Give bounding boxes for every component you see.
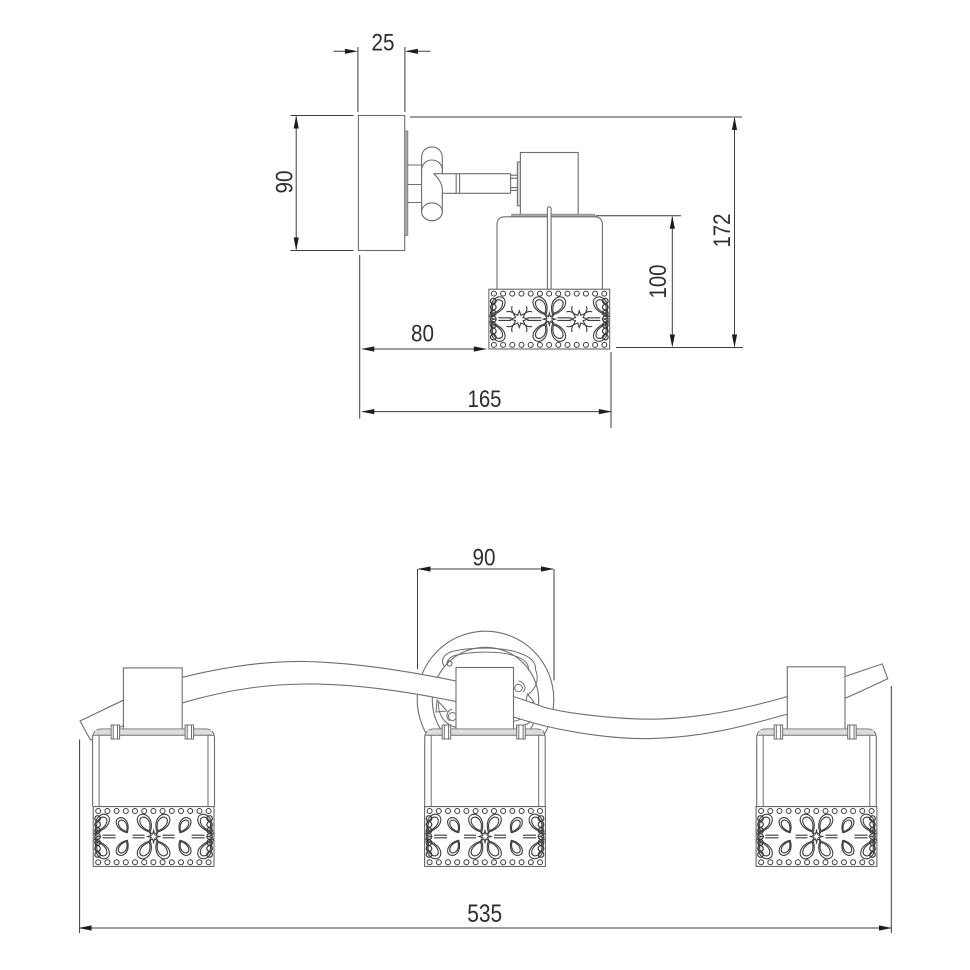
svg-text:80: 80 [411, 321, 434, 348]
svg-text:25: 25 [372, 29, 395, 56]
svg-text:90: 90 [272, 171, 299, 194]
svg-text:90: 90 [473, 545, 496, 572]
svg-text:535: 535 [467, 900, 502, 928]
svg-text:100: 100 [645, 265, 672, 299]
svg-text:165: 165 [468, 386, 502, 413]
svg-text:172: 172 [709, 214, 736, 248]
